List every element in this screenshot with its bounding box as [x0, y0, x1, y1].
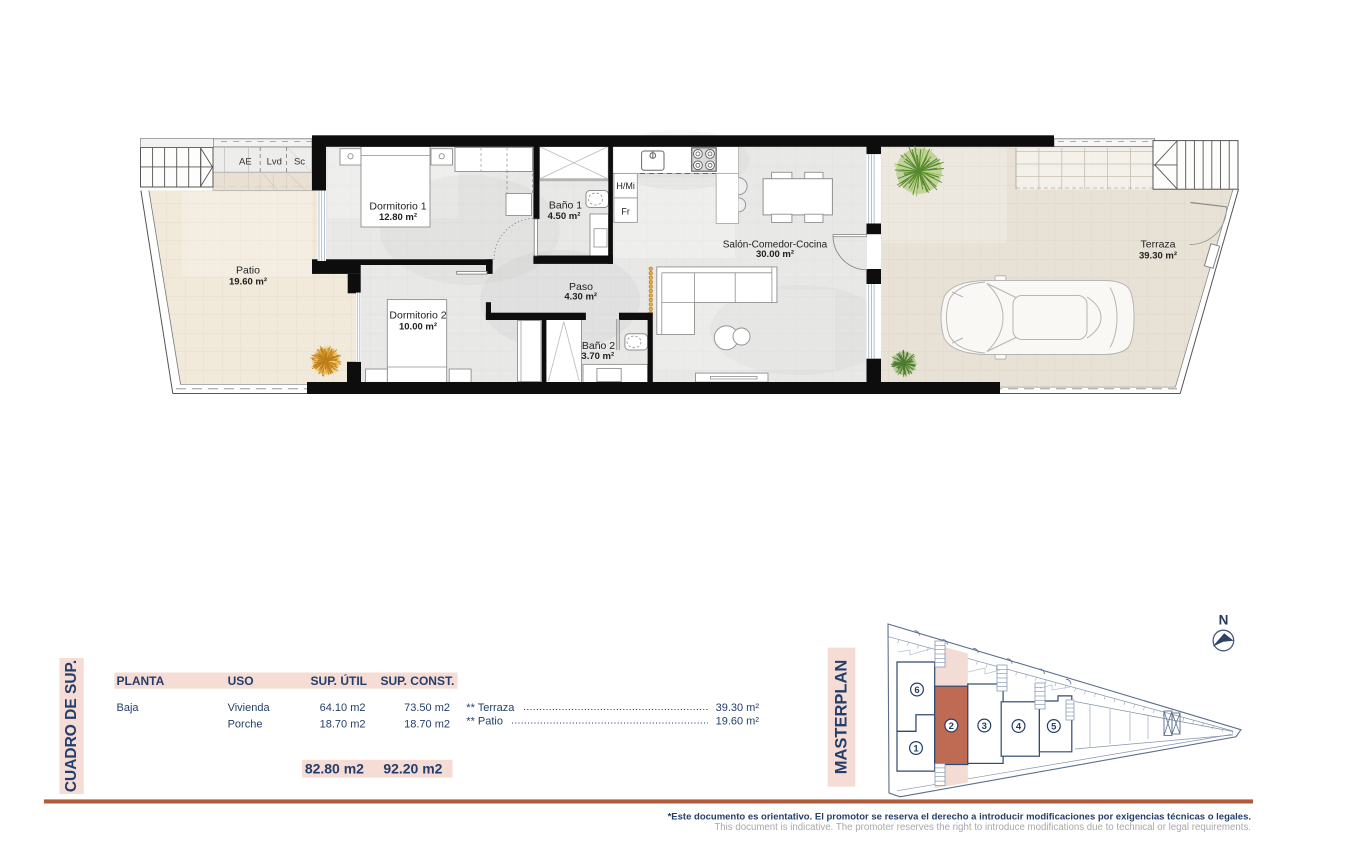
- svg-text:5: 5: [1051, 721, 1057, 732]
- svg-text:2: 2: [949, 721, 954, 732]
- svg-text:Dormitorio 1: Dormitorio 1: [369, 201, 426, 213]
- svg-text:Terraza: Terraza: [1140, 239, 1175, 251]
- svg-text:92.20 m2: 92.20 m2: [383, 761, 442, 777]
- svg-text:PLANTA: PLANTA: [117, 674, 165, 688]
- svg-text:73.50 m2: 73.50 m2: [404, 702, 450, 714]
- svg-text:10.00 m²: 10.00 m²: [399, 322, 437, 333]
- svg-text:18.70 m2: 18.70 m2: [320, 719, 366, 731]
- svg-text:39.30 m²: 39.30 m²: [1139, 251, 1177, 262]
- svg-text:18.70 m2: 18.70 m2: [404, 719, 450, 731]
- svg-text:Lvd: Lvd: [267, 156, 282, 167]
- svg-text:CUADRO DE SUP.: CUADRO DE SUP.: [63, 660, 80, 792]
- svg-text:82.80 m2: 82.80 m2: [305, 761, 364, 777]
- svg-text:1: 1: [913, 743, 919, 754]
- svg-text:19.60 m²: 19.60 m²: [229, 277, 267, 288]
- svg-text:Fr: Fr: [621, 206, 630, 216]
- svg-text:4.30 m²: 4.30 m²: [564, 292, 597, 303]
- svg-text:H/Mi: H/Mi: [616, 181, 635, 191]
- svg-text:Sc: Sc: [294, 156, 305, 167]
- svg-text:USO: USO: [228, 674, 254, 688]
- svg-text:This document is indicative. T: This document is indicative. The promote…: [714, 822, 1251, 833]
- svg-text:19.60 m²: 19.60 m²: [716, 716, 760, 728]
- svg-text:3: 3: [982, 721, 987, 732]
- svg-text:AE: AE: [239, 156, 252, 167]
- svg-text:39.30 m²: 39.30 m²: [716, 702, 760, 714]
- svg-text:SUP. ÚTIL: SUP. ÚTIL: [311, 673, 367, 688]
- svg-text:Porche: Porche: [228, 719, 263, 731]
- svg-text:4: 4: [1016, 721, 1022, 732]
- svg-text:6: 6: [914, 685, 919, 696]
- svg-text:3.70 m²: 3.70 m²: [581, 351, 614, 362]
- svg-text:Vivienda: Vivienda: [228, 702, 271, 714]
- svg-text:64.10 m2: 64.10 m2: [320, 702, 366, 714]
- svg-text:Baja: Baja: [117, 702, 140, 714]
- svg-text:SUP. CONST.: SUP. CONST.: [380, 674, 454, 688]
- svg-text:** Terraza: ** Terraza: [466, 702, 515, 714]
- svg-text:Patio: Patio: [236, 265, 260, 277]
- svg-text:Dormitorio 2: Dormitorio 2: [389, 310, 446, 322]
- svg-text:Baño 1: Baño 1: [549, 200, 582, 212]
- svg-text:MASTERPLAN: MASTERPLAN: [833, 660, 851, 775]
- svg-text:4.50 m²: 4.50 m²: [548, 211, 581, 222]
- svg-text:** Patio: ** Patio: [466, 716, 503, 728]
- svg-text:N: N: [1219, 613, 1229, 628]
- svg-text:30.00 m²: 30.00 m²: [756, 249, 794, 260]
- svg-text:12.80 m²: 12.80 m²: [379, 212, 417, 223]
